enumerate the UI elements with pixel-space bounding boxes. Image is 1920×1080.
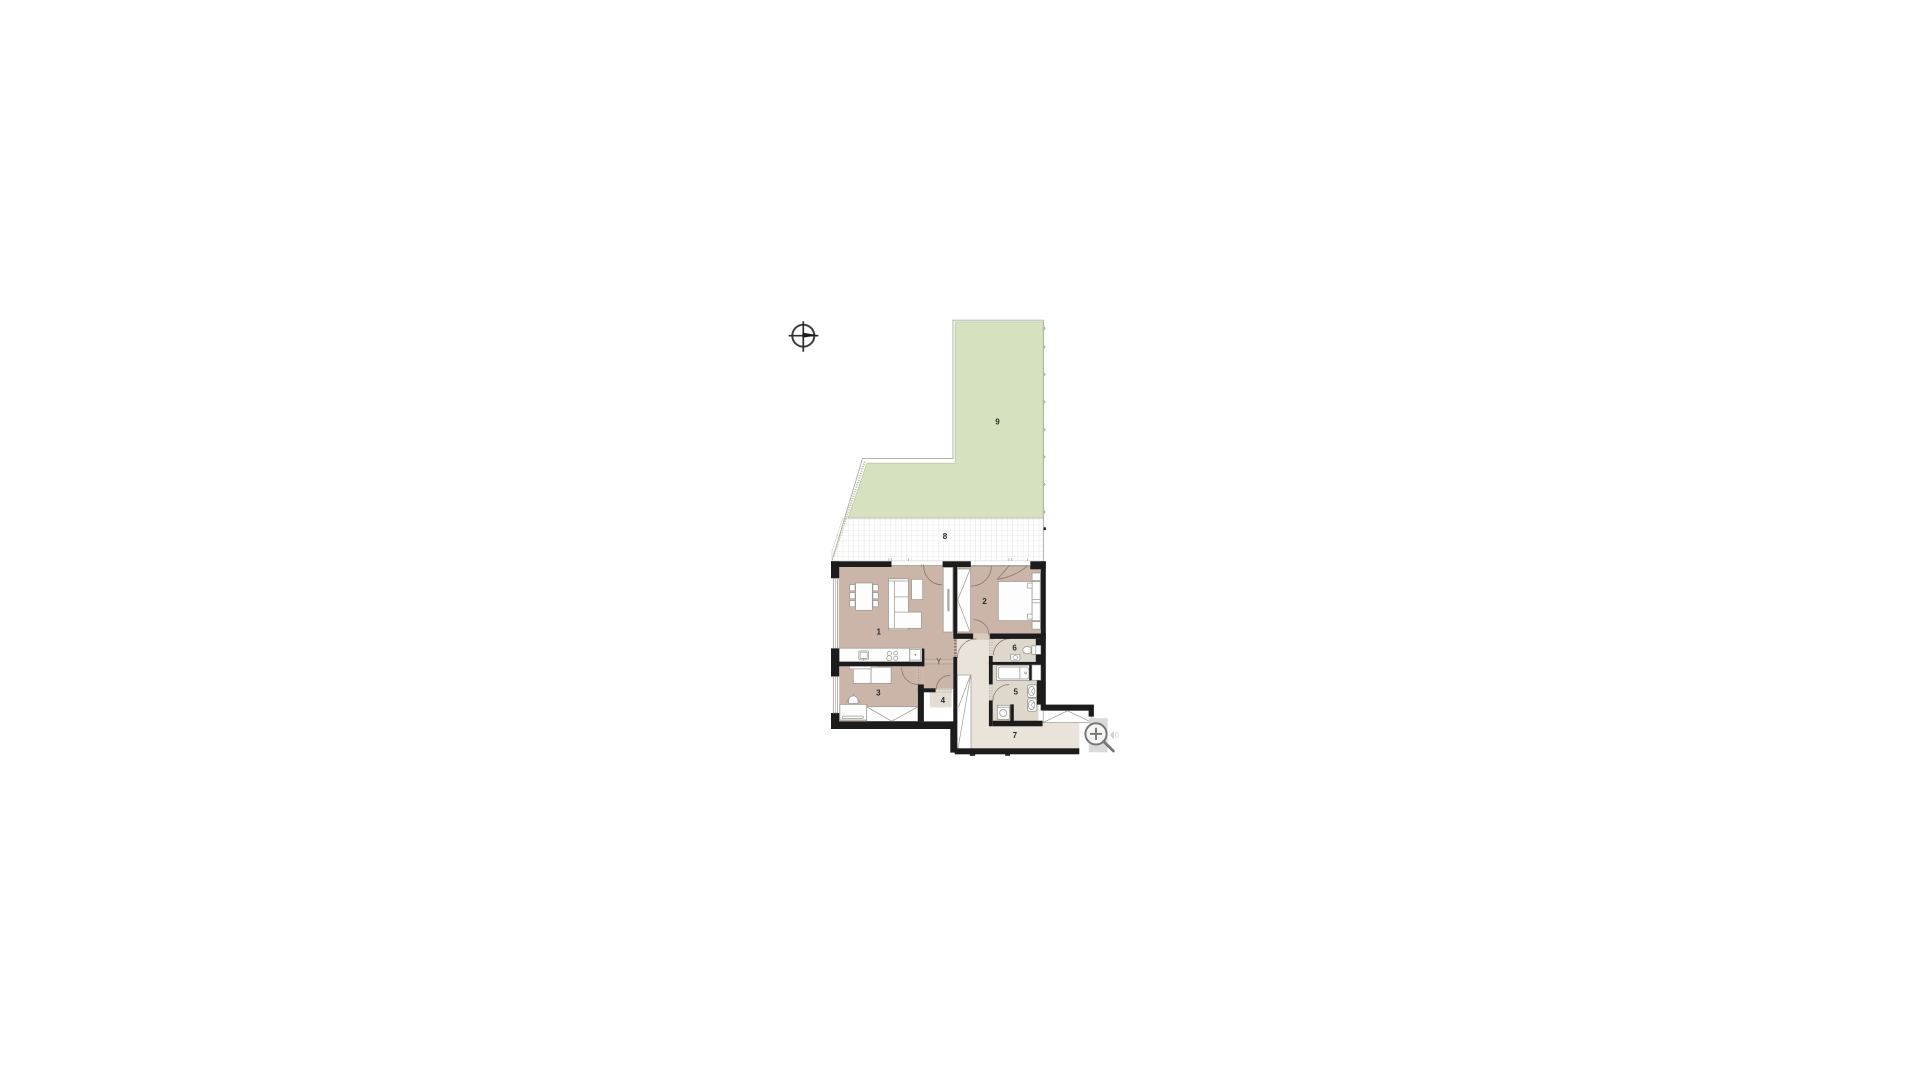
svg-text:4: 4 [941, 696, 946, 705]
svg-text:5: 5 [1013, 688, 1018, 697]
svg-text:8: 8 [943, 532, 948, 541]
svg-text:2: 2 [982, 597, 987, 606]
svg-text:9: 9 [995, 418, 1000, 427]
svg-text:3: 3 [876, 688, 881, 697]
svg-text:1: 1 [876, 627, 881, 636]
svg-text:7: 7 [1013, 731, 1018, 740]
svg-text:6: 6 [1012, 644, 1017, 653]
